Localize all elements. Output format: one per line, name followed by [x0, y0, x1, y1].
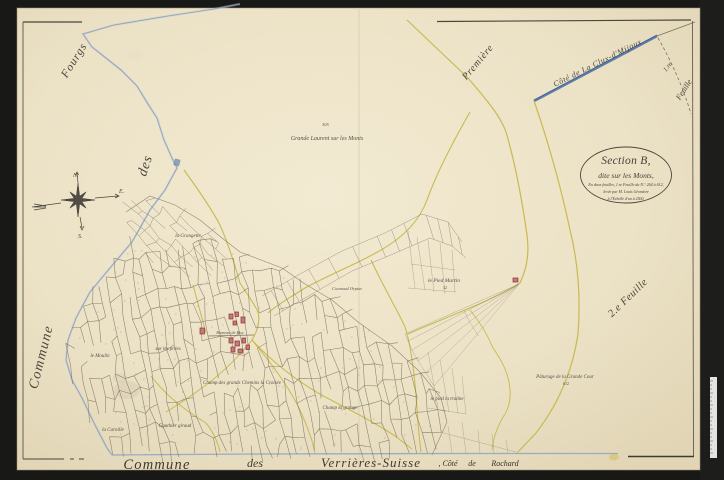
svg-text:Counoud Orptat: Counoud Orptat — [332, 286, 362, 291]
svg-text:Hameau de Bise: Hameau de Bise — [215, 330, 244, 335]
svg-text:305: 305 — [322, 122, 330, 127]
svg-text:de: de — [468, 459, 476, 468]
svg-text:N.: N. — [72, 173, 79, 179]
svg-text:Section B,: Section B, — [601, 155, 651, 167]
svg-text:la Grangette: la Grangette — [175, 234, 201, 239]
svg-text:le Pied Martin: le Pied Martin — [428, 278, 460, 284]
svg-text:S.: S. — [78, 234, 83, 240]
svg-text:52: 52 — [443, 285, 447, 290]
svg-text:la Carnille: la Carnille — [102, 428, 125, 433]
svg-text:E.: E. — [118, 189, 124, 195]
svg-text:Champ la grange: Champ la grange — [323, 406, 359, 411]
svg-text:612: 612 — [563, 381, 569, 386]
svg-text:le Moulin: le Moulin — [90, 354, 110, 359]
svg-text:dite sur les Monts,: dite sur les Monts, — [598, 171, 654, 180]
svg-text:Pâturage de la Grande Cour: Pâturage de la Grande Cour — [535, 375, 594, 380]
svg-text:, Côté: , Côté — [438, 459, 458, 468]
svg-text:le pied la traline: le pied la traline — [430, 397, 464, 402]
svg-text:Rochard: Rochard — [490, 459, 519, 468]
svg-text:Commune: Commune — [123, 457, 190, 473]
svg-text:Verrières-Suisse: Verrières-Suisse — [321, 455, 421, 470]
svg-text:des: des — [247, 456, 263, 470]
svg-text:Champ des grands Chemins la Cr: Champ des grands Chemins la Croisée — [203, 381, 282, 386]
svg-text:à l'Echelle d'un à 2500.: à l'Echelle d'un à 2500. — [608, 197, 645, 201]
svg-text:sur les prées: sur les prées — [155, 347, 180, 352]
svg-text:Gauthier giraud: Gauthier giraud — [159, 424, 192, 429]
svg-text:Grande Laurent sur les Monts: Grande Laurent sur les Monts — [291, 136, 364, 142]
svg-text:levée par M. Louis Géomètre: levée par M. Louis Géomètre — [603, 190, 649, 194]
